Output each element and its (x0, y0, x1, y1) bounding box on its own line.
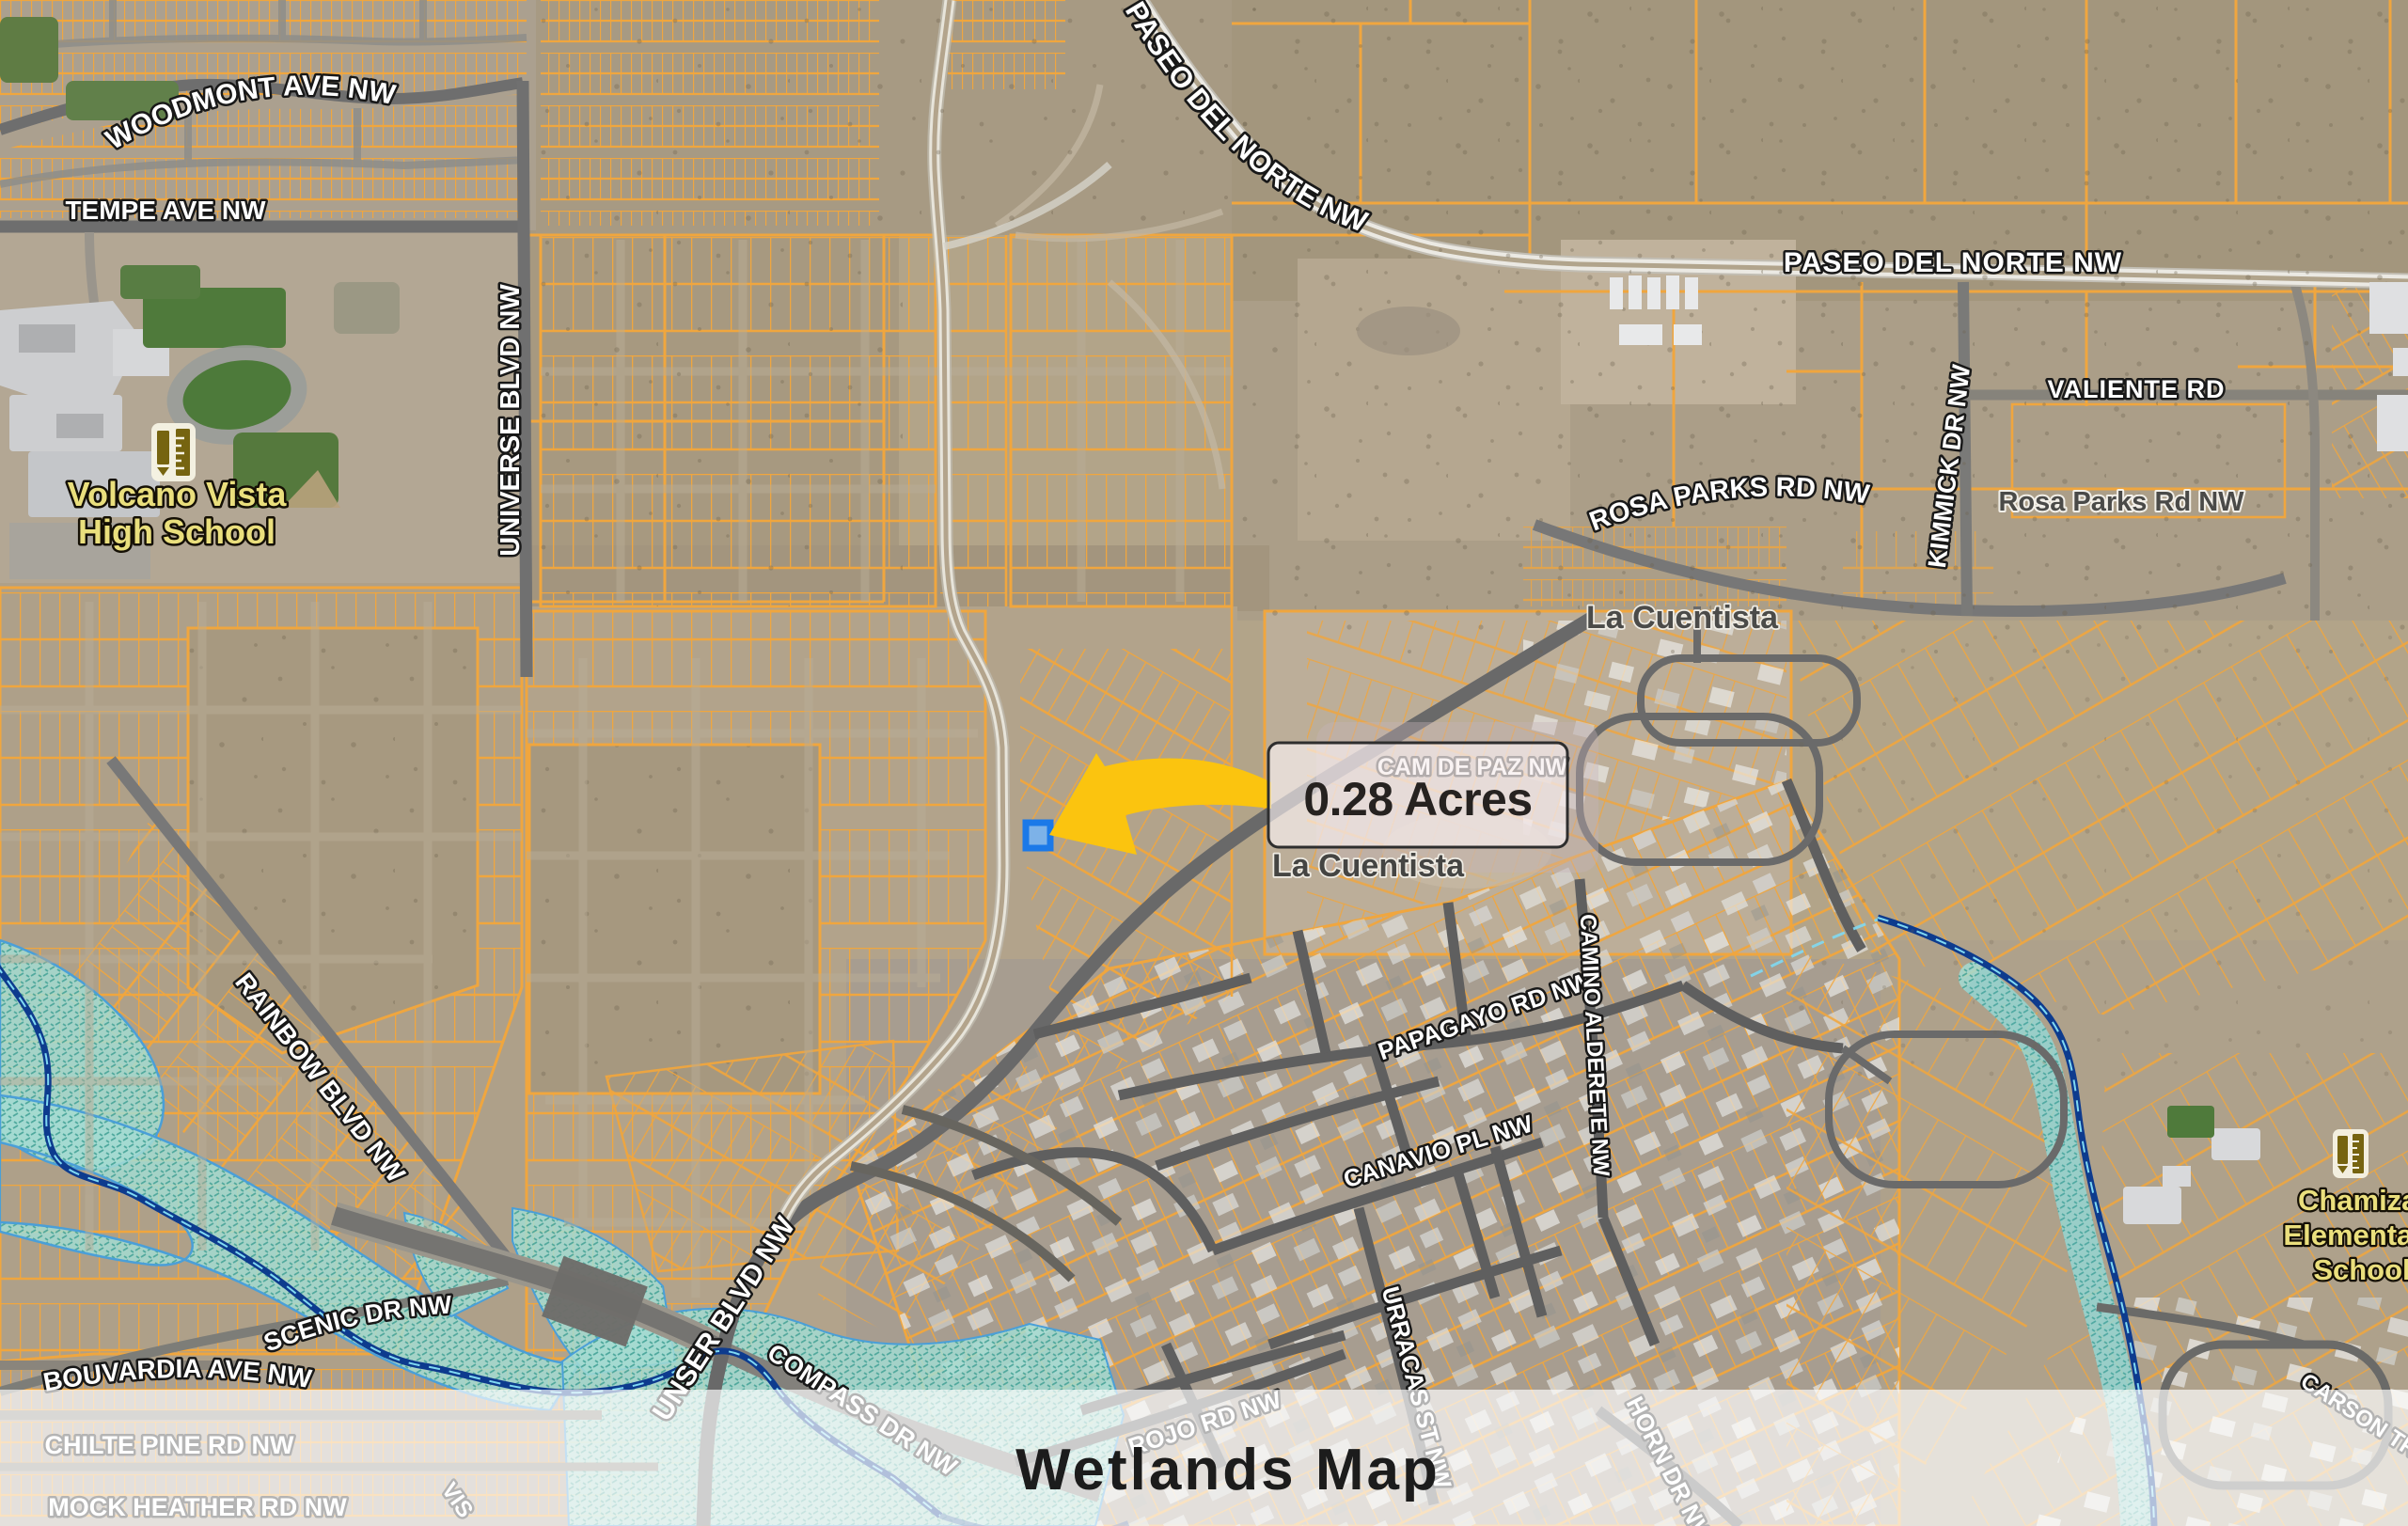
svg-text:0.28 Acres: 0.28 Acres (1303, 773, 1532, 826)
svg-text:PASEO DEL NORTE NW: PASEO DEL NORTE NW (1784, 247, 2122, 278)
svg-text:Wetlands Map: Wetlands Map (1015, 1438, 1440, 1502)
svg-text:Elementary: Elementary (2283, 1219, 2408, 1251)
svg-text:La Cuentista: La Cuentista (1586, 600, 1779, 636)
svg-text:VALIENTE RD: VALIENTE RD (2047, 375, 2225, 403)
svg-text:Rosa Parks Rd NW: Rosa Parks Rd NW (1998, 487, 2244, 517)
svg-text:UNIVERSE BLVD NW: UNIVERSE BLVD NW (496, 284, 526, 557)
svg-text:School: School (2313, 1253, 2408, 1286)
svg-text:Volcano Vista: Volcano Vista (68, 475, 288, 513)
svg-text:TEMPE AVE NW: TEMPE AVE NW (65, 196, 266, 225)
svg-text:La Cuentista: La Cuentista (1272, 848, 1465, 884)
svg-text:High School: High School (78, 512, 275, 551)
svg-text:Chamizal: Chamizal (2298, 1184, 2408, 1217)
